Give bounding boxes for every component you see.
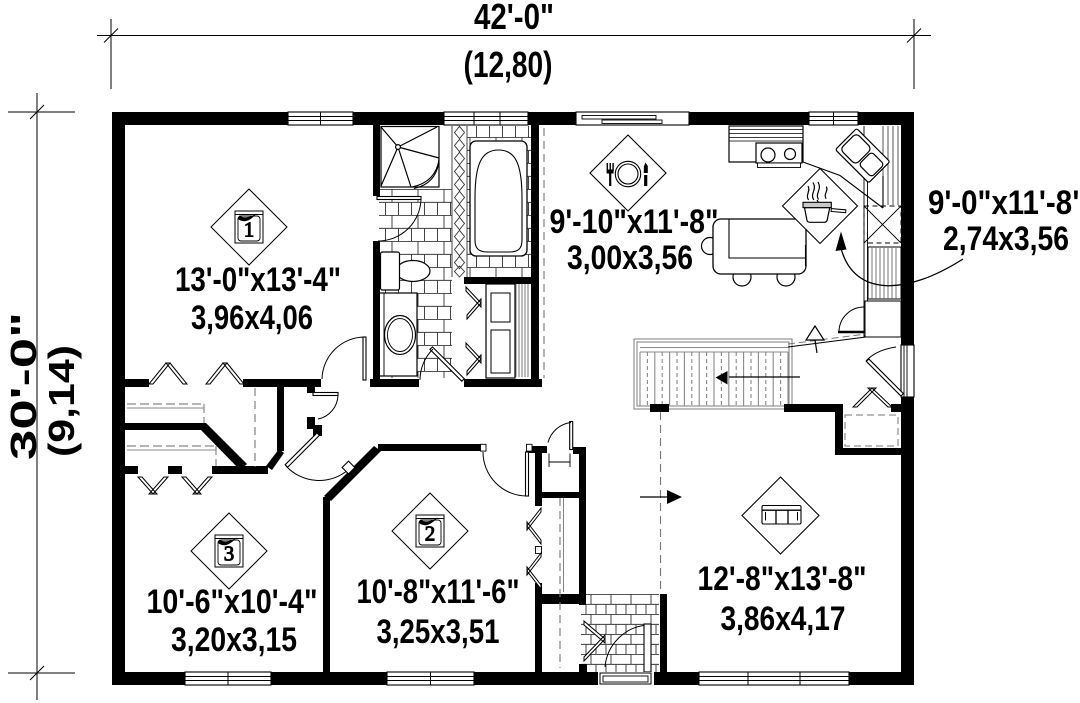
- svg-text:1: 1: [244, 218, 255, 242]
- svg-text:3,20x3,15: 3,20x3,15: [171, 621, 297, 659]
- svg-text:(9,14): (9,14): [41, 345, 82, 457]
- svg-text:3,00x3,56: 3,00x3,56: [567, 239, 693, 277]
- svg-text:(12,80): (12,80): [464, 44, 553, 85]
- svg-text:42'-0": 42'-0": [474, 0, 554, 37]
- svg-text:2: 2: [425, 522, 436, 546]
- svg-text:30'-0": 30'-0": [3, 312, 44, 460]
- svg-text:13'-0"x13'-4": 13'-0"x13'-4": [175, 261, 341, 299]
- svg-text:3,25x3,51: 3,25x3,51: [377, 613, 500, 651]
- svg-text:9'-0"x11'-8": 9'-0"x11'-8": [928, 184, 1080, 222]
- svg-text:3,86x4,17: 3,86x4,17: [721, 600, 846, 638]
- svg-text:12'-8"x13'-8": 12'-8"x13'-8": [698, 560, 867, 598]
- svg-text:3: 3: [224, 542, 235, 566]
- svg-text:2,74x3,56: 2,74x3,56: [943, 220, 1069, 258]
- svg-text:3,96x4,06: 3,96x4,06: [191, 299, 313, 337]
- svg-text:10'-8"x11'-6": 10'-8"x11'-6": [357, 573, 520, 611]
- svg-text:9'-10"x11'-8": 9'-10"x11'-8": [550, 203, 719, 241]
- svg-text:10'-6"x10'-4": 10'-6"x10'-4": [147, 583, 318, 621]
